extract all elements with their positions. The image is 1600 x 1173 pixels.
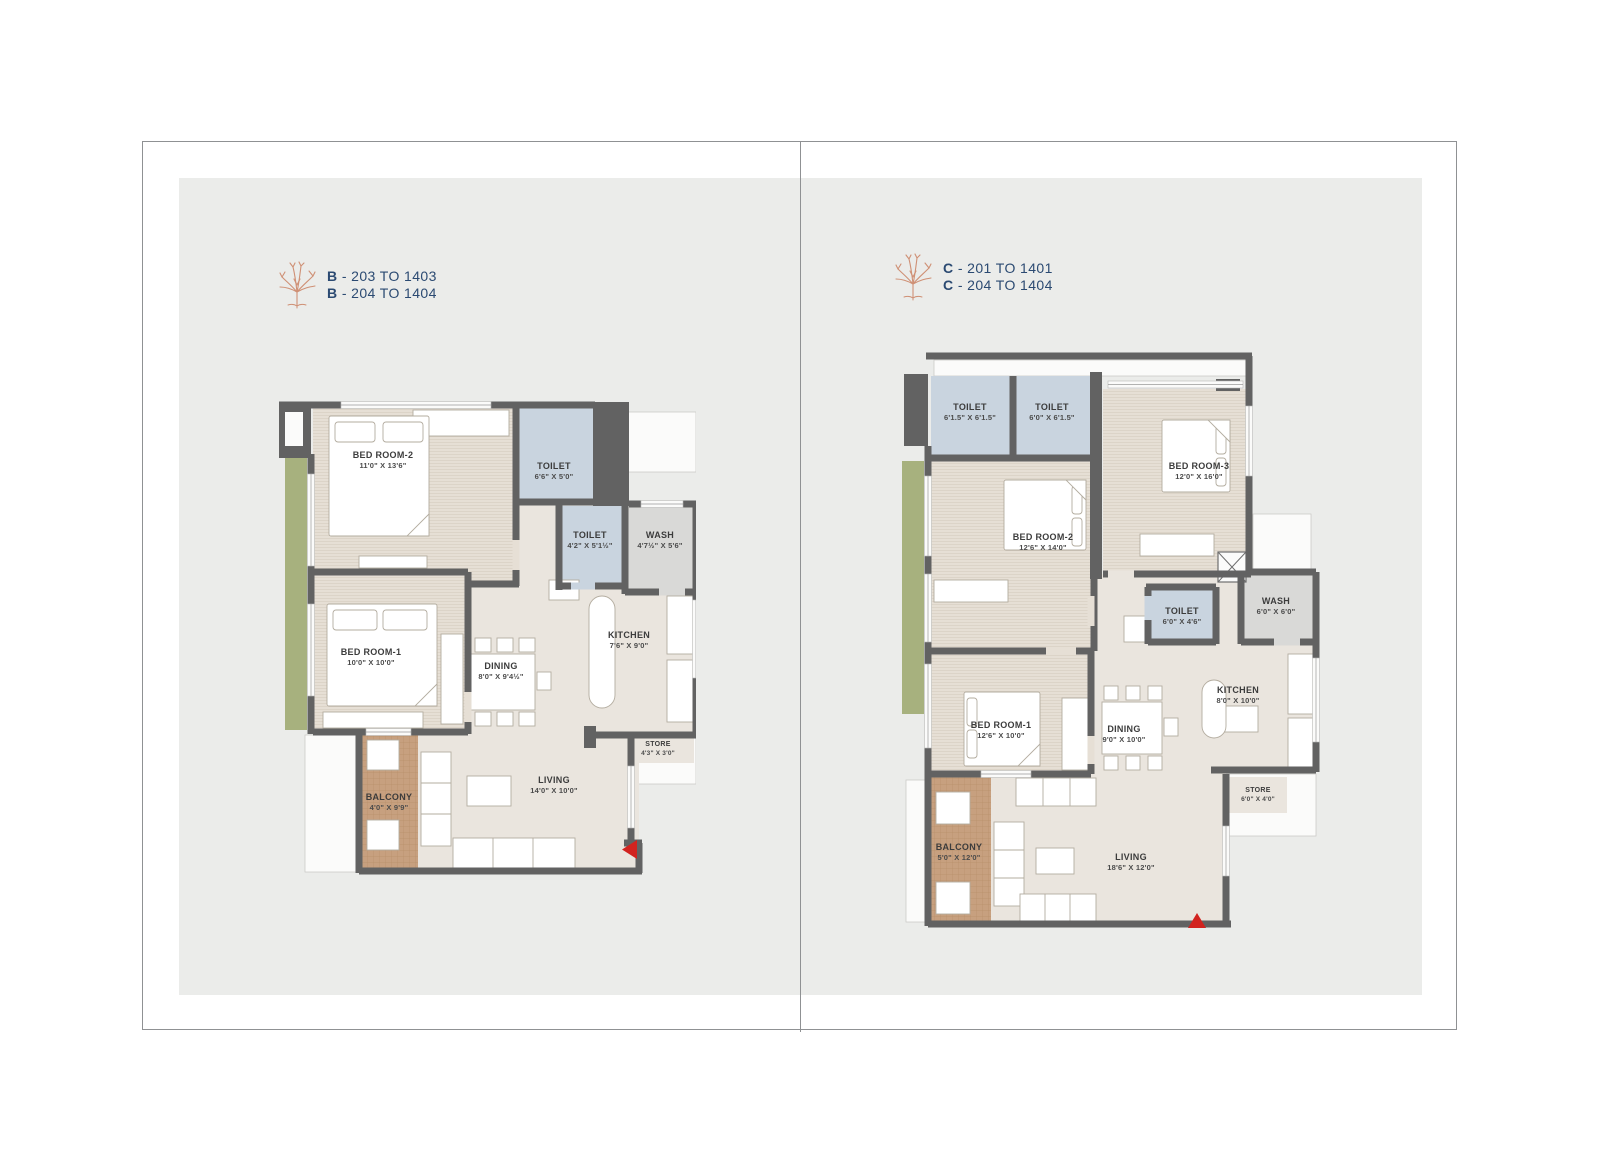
room-label-bedroom-1: BED ROOM-1 12'6" X 10'0": [971, 720, 1032, 740]
room-label-bedroom-1: BED ROOM-1 10'0" X 10'0": [341, 647, 402, 667]
tree-icon: [277, 260, 317, 310]
unit-range-line: C - 204 TO 1404: [943, 277, 1053, 294]
room-label-bedroom-3: BED ROOM-3 12'0" X 16'0": [1169, 461, 1230, 481]
exterior-nook: [1253, 514, 1311, 570]
wall-block: [593, 402, 629, 506]
unit-b-header: B - 203 TO 1403 B - 204 TO 1404: [277, 260, 437, 310]
unit-range-line: C - 201 TO 1401: [943, 260, 1053, 277]
unit-b-lines: B - 203 TO 1403 B - 204 TO 1404: [327, 268, 437, 302]
room-label-balcony: BALCONY 4'0" X 9'9": [366, 792, 413, 812]
exterior-strip: [305, 735, 359, 872]
unit-c-lines: C - 201 TO 1401 C - 204 TO 1404: [943, 260, 1053, 294]
room-label-dining: DINING 9'0" X 10'0": [1102, 724, 1145, 744]
room-label-kitchen: KITCHEN 7'6" X 9'0": [608, 630, 650, 650]
room-label-store: STORE 4'3" X 3'0": [641, 741, 675, 758]
page-background: { "headers": { "left": { "lines": [ {"un…: [0, 0, 1600, 1173]
wall-block: [1090, 372, 1102, 579]
room-label-bedroom-2: BED ROOM-2 12'6" X 14'0": [1013, 532, 1074, 552]
room-label-living: LIVING 18'6" X 12'0": [1107, 852, 1154, 872]
room-label-toilet-mid: TOILET 6'0" X 4'6": [1163, 606, 1202, 626]
room-label-wash: WASH 6'0" X 6'0": [1257, 596, 1296, 616]
room-label-kitchen: KITCHEN 8'0" X 10'0": [1216, 685, 1259, 705]
unit-range-line: B - 203 TO 1403: [327, 268, 437, 285]
exterior-strip: [906, 780, 926, 922]
floor-plan-b: BED ROOM-2 11'0" X 13'6" TOILET 6'6" X 5…: [271, 394, 696, 878]
room-label-toilet-mid: TOILET 4'2" X 5'1½": [567, 530, 612, 550]
room-toilet-top: [518, 408, 593, 502]
room-label-toilet-2: TOILET 6'0" X 6'1.5": [1029, 402, 1074, 422]
room-label-balcony: BALCONY 5'0" X 12'0": [936, 842, 983, 862]
room-label-toilet-top: TOILET 6'6" X 5'0": [535, 461, 574, 481]
passage-floor: [516, 502, 559, 588]
page-fold-divider: [800, 141, 801, 1032]
room-label-store: STORE 6'0" X 4'0": [1241, 787, 1275, 804]
floor-plan-c: TOILET 6'1.5" X 6'1.5" TOILET 6'0" X 6'1…: [886, 346, 1326, 931]
planter-strip: [285, 456, 307, 730]
room-label-living: LIVING 14'0" X 10'0": [530, 775, 577, 795]
room-label-dining: DINING 8'0" X 9'4½": [478, 661, 523, 681]
room-label-bedroom-2: BED ROOM-2 11'0" X 13'6": [353, 450, 414, 470]
brochure-spread: B - 203 TO 1403 B - 204 TO 1404 C - 201 …: [142, 141, 1457, 1030]
wall-niche: [285, 412, 303, 446]
unit-range-line: B - 204 TO 1404: [327, 285, 437, 302]
room-label-toilet-1: TOILET 6'1.5" X 6'1.5": [944, 402, 996, 422]
unit-c-header: C - 201 TO 1401 C - 204 TO 1404: [893, 252, 1053, 302]
room-label-wash: WASH 4'7½" X 5'6": [637, 530, 682, 550]
planter-strip: [902, 461, 924, 714]
tree-icon: [893, 252, 933, 302]
wall-block: [904, 374, 928, 446]
